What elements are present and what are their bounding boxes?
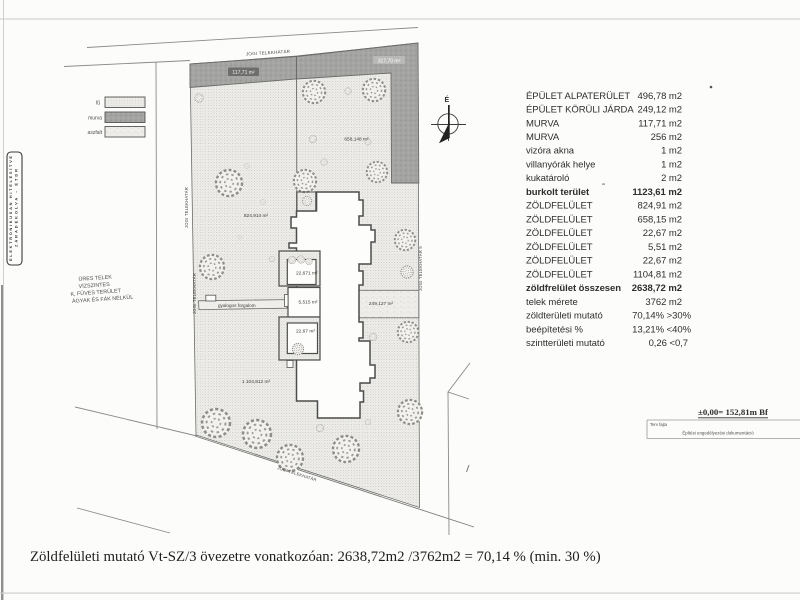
svg-text:70,14% >30%: 70,14% >30% xyxy=(632,311,691,322)
svg-text:1104,81 m2: 1104,81 m2 xyxy=(633,269,682,280)
svg-text:658,15 m2: 658,15 m2 xyxy=(638,214,682,225)
svg-text:ÉPÜLET ALPATERÜLET: ÉPÜLET ALPATERÜLET xyxy=(526,91,630,102)
svg-text:kukatároló: kukatároló xyxy=(526,173,569,184)
svg-text:658,148 m²: 658,148 m² xyxy=(344,137,369,143)
svg-text:szintterületi mutató: szintterületi mutató xyxy=(526,338,605,349)
svg-text:telek mérete: telek mérete xyxy=(526,297,578,308)
svg-text:317,70 m²: 317,70 m² xyxy=(378,58,401,64)
svg-text:496,78 m2: 496,78 m2 xyxy=(638,91,682,102)
svg-text:JOGI TELEKHATÁR: JOGI TELEKHATÁR xyxy=(184,187,189,228)
svg-text:ZÖLDFELÜLET: ZÖLDFELÜLET xyxy=(526,214,593,225)
svg-text:5,51 m2: 5,51 m2 xyxy=(648,242,682,253)
svg-text:0,26 <0,7: 0,26 <0,7 xyxy=(649,338,688,349)
svg-text:MURVA: MURVA xyxy=(526,118,560,129)
svg-text:2638,72 m2: 2638,72 m2 xyxy=(632,283,682,294)
svg-text:beépítetési %: beépítetési % xyxy=(526,324,584,335)
svg-text:22,671 m²: 22,671 m² xyxy=(296,271,318,277)
svg-text:vizóra akna: vizóra akna xyxy=(526,146,575,157)
svg-text:fű: fű xyxy=(96,101,100,107)
svg-text:villanyórák helye: villanyórák helye xyxy=(526,160,595,171)
svg-text:249,12 m2: 249,12 m2 xyxy=(638,105,682,116)
svg-text:1123,61 m2: 1123,61 m2 xyxy=(632,187,682,198)
svg-text:murva: murva xyxy=(88,116,102,122)
svg-text:117,71 m²: 117,71 m² xyxy=(232,70,254,76)
svg-text:MURVA: MURVA xyxy=(526,132,560,143)
svg-text:2 m2: 2 m2 xyxy=(661,173,682,184)
svg-text:Terv fajta: Terv fajta xyxy=(650,422,668,427)
svg-text:gyalogos forgalom: gyalogos forgalom xyxy=(218,303,256,308)
svg-text:zöldterületi mutató: zöldterületi mutató xyxy=(526,311,603,322)
svg-text:1 m2: 1 m2 xyxy=(661,160,682,171)
svg-text:Zöldfelületi mutató Vt-SZ/3 öv: Zöldfelületi mutató Vt-SZ/3 övezetre von… xyxy=(30,549,601,565)
svg-text:249,127 m²: 249,127 m² xyxy=(369,301,394,307)
svg-text:22,67 m2: 22,67 m2 xyxy=(643,256,682,267)
svg-text:ÉPÜLET KÖRÜLI JÁRDA: ÉPÜLET KÖRÜLI JÁRDA xyxy=(526,105,634,116)
svg-text:1 104,812 m²: 1 104,812 m² xyxy=(242,379,271,385)
svg-text:22,67 m2: 22,67 m2 xyxy=(643,228,682,239)
svg-text:±0,00= 152,81m Bf: ±0,00= 152,81m Bf xyxy=(698,407,769,417)
svg-text:É: É xyxy=(445,95,450,104)
svg-text:5,515 m²: 5,515 m² xyxy=(299,300,318,306)
svg-text:ZÁRADÉKOLVA – ÉTDR: ZÁRADÉKOLVA – ÉTDR xyxy=(13,169,18,247)
svg-text:ZÖLDFELÜLET: ZÖLDFELÜLET xyxy=(526,269,593,280)
svg-text:JOGI TELEKHATÁR: JOGI TELEKHATÁR xyxy=(246,49,291,57)
svg-text:JOGI TELEKHATÁR 5: JOGI TELEKHATÁR 5 xyxy=(418,246,423,291)
svg-text:aszfalt: aszfalt xyxy=(88,130,103,136)
svg-text:JOGI TELEKHATÁR: JOGI TELEKHATÁR xyxy=(192,273,197,314)
svg-text:ZÖLDFELÜLET: ZÖLDFELÜLET xyxy=(526,242,593,253)
svg-text:256 m2: 256 m2 xyxy=(651,132,682,143)
svg-text:22,67 m²: 22,67 m² xyxy=(296,329,315,335)
svg-text:117,71 m2: 117,71 m2 xyxy=(638,118,682,129)
svg-text:ZÖLDFELÜLET: ZÖLDFELÜLET xyxy=(526,228,593,239)
svg-text:zöldfrelület összesen: zöldfrelület összesen xyxy=(526,283,621,294)
svg-text:13,21% <40%: 13,21% <40% xyxy=(632,324,691,335)
svg-text:3762 m2: 3762 m2 xyxy=(645,297,682,308)
svg-text:824,91 m2: 824,91 m2 xyxy=(638,201,682,212)
svg-text:burkolt terület: burkolt terület xyxy=(526,187,590,198)
svg-text:1 m2: 1 m2 xyxy=(661,146,682,157)
svg-text:Építési engedélyezési dokument: Építési engedélyezési dokumentáció xyxy=(682,431,754,436)
svg-text:824,914 m²: 824,914 m² xyxy=(244,213,269,219)
svg-text:ZÖLDFELÜLET: ZÖLDFELÜLET xyxy=(526,256,593,267)
svg-text:ZÖLDFELÜLET: ZÖLDFELÜLET xyxy=(526,201,593,212)
